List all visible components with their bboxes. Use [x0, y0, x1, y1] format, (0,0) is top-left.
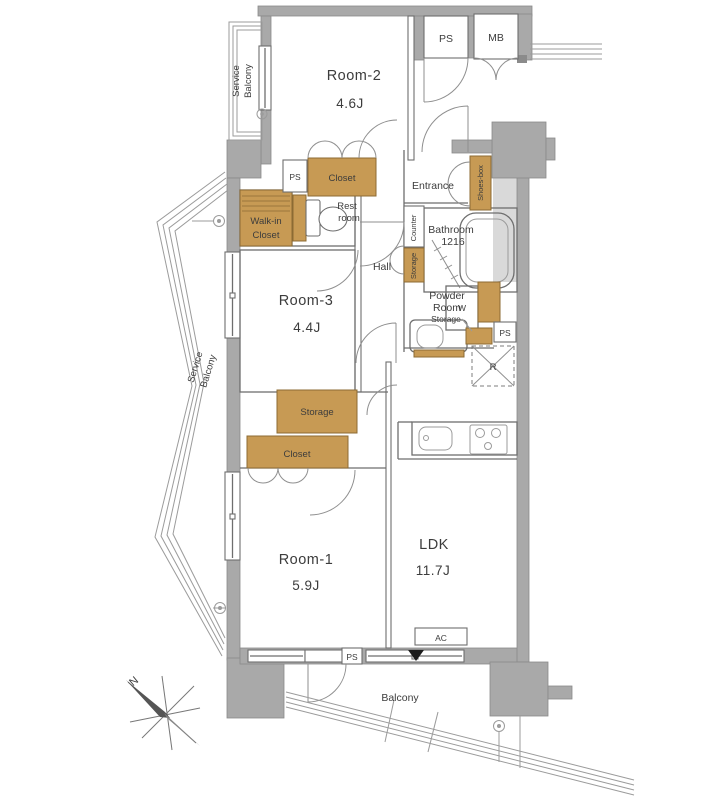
room3-door: [317, 250, 358, 291]
floor-plan: Service Balcony Room-2 4.6J PS MB PS Clo…: [0, 0, 727, 800]
ldk-size: 11.7J: [416, 563, 451, 578]
room-1-size: 5.9J: [292, 578, 320, 593]
compass: [126, 676, 200, 750]
room-2-label: Room-2: [327, 68, 382, 84]
pillar-top-right: [492, 122, 546, 178]
compass-north-label: N: [127, 675, 141, 689]
closet-room2-label: Closet: [329, 173, 356, 184]
hall-label: Hall: [373, 261, 391, 273]
powder-room-label-1: Powder: [429, 290, 465, 302]
room-1-label: Room-1: [279, 552, 334, 568]
bathroom-label-2: 1216: [441, 236, 465, 248]
mb-label: MB: [488, 32, 504, 44]
labels: Service Balcony Room-2 4.6J PS MB PS Clo…: [127, 32, 511, 704]
restroom-door: [360, 222, 404, 266]
powder-storage-label: Storage: [431, 314, 461, 324]
pillar-bottom-right: [490, 662, 548, 716]
room-3-size: 4.4J: [293, 320, 321, 335]
closet-room2-folding-doors: [308, 141, 376, 158]
rest-room-label-1: Rest: [337, 201, 357, 212]
railing-hinge-details: [214, 216, 226, 614]
ps-upper-label: PS: [289, 172, 301, 182]
toilet-tank: [306, 200, 320, 236]
room2-door: [359, 120, 397, 158]
pillar-bottom-left: [227, 658, 284, 718]
shoes-box-label: Shoes-box: [476, 165, 485, 201]
entrance-label: Entrance: [412, 180, 454, 192]
walk-in-closet-label-2: Closet: [253, 230, 280, 241]
powder-storage-box: [466, 328, 492, 344]
storage-main-label: Storage: [300, 407, 333, 418]
balcony-label: Balcony: [381, 692, 419, 704]
vanity-basin: [417, 325, 443, 348]
ps-top-label: PS: [439, 33, 453, 45]
service-balcony-top-label-2: Balcony: [243, 64, 254, 98]
kitchen: [398, 422, 517, 459]
faucet-icon: [424, 436, 429, 441]
walk-in-closet-label-1: Walk-in: [250, 216, 281, 227]
closet-room1-label: Closet: [284, 449, 311, 460]
service-balcony-left-railing: [155, 172, 228, 656]
storage-main-door: [367, 385, 397, 415]
ps-door: [424, 58, 468, 102]
room-3-label: Room-3: [279, 293, 334, 309]
service-balcony-top-label-1: Service: [231, 65, 242, 97]
room-2-size: 4.6J: [336, 96, 364, 111]
hall-storage-label: Storage: [409, 253, 418, 279]
ps-bottom-label: PS: [346, 652, 358, 662]
closet-room1-folding-doors: [248, 468, 308, 483]
floor-plan-drawing: Service Balcony Room-2 4.6J PS MB PS Clo…: [0, 0, 727, 800]
counter-label: Counter: [409, 214, 418, 241]
doors: [248, 58, 518, 702]
rest-room-label-2: room: [338, 213, 360, 224]
washer-cabinet: [478, 282, 500, 322]
balcony-railing: [286, 692, 634, 795]
fridge-label: R: [490, 362, 497, 373]
ldk-label: LDK: [419, 537, 449, 553]
room1-door: [310, 470, 355, 515]
mb-doors: [474, 58, 518, 80]
bathroom-label-1: Bathroom: [428, 224, 474, 236]
balcony-door: [308, 664, 346, 702]
ac-label: AC: [435, 633, 447, 643]
walls: [227, 6, 572, 718]
ldk-door: [356, 323, 396, 363]
ps-right-label: PS: [499, 328, 511, 338]
washer-label: W: [458, 303, 466, 313]
hall-storage-doors: [390, 246, 404, 274]
